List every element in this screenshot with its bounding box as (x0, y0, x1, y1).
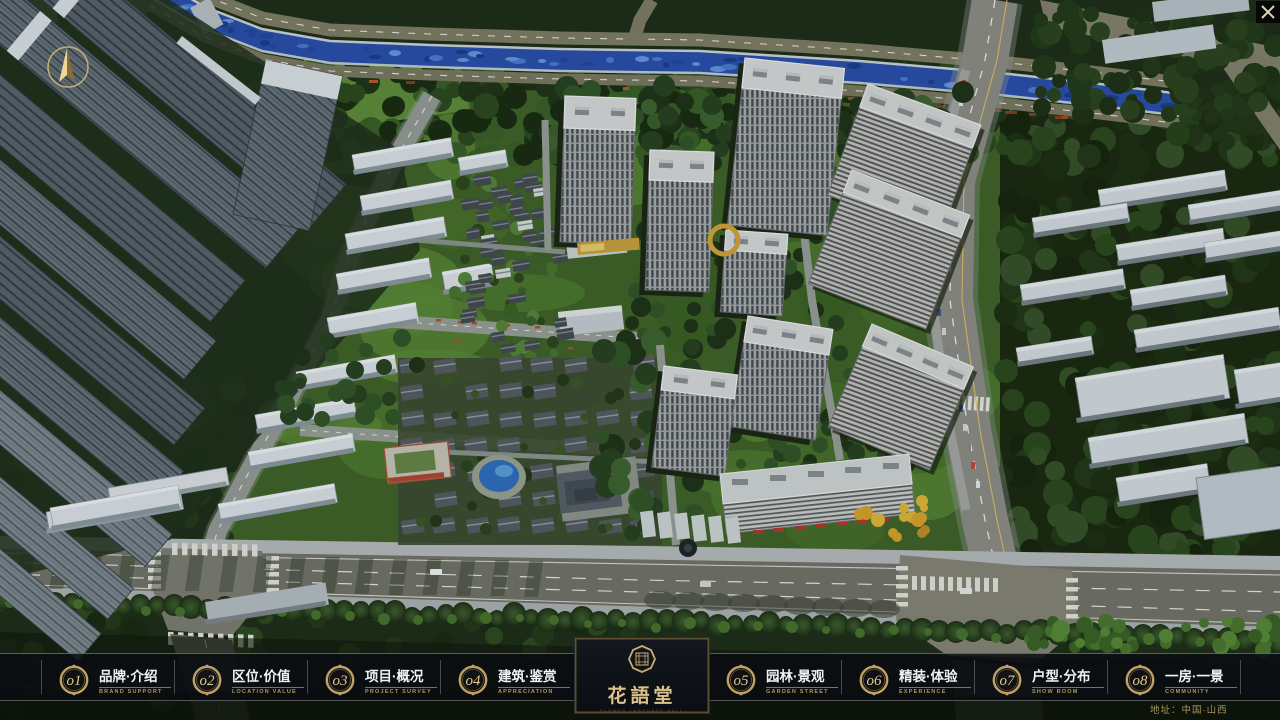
svg-text:o1: o1 (67, 673, 82, 689)
svg-text:o2: o2 (200, 673, 216, 689)
svg-text:o6: o6 (867, 673, 883, 689)
svg-text:o8: o8 (1133, 673, 1149, 689)
svg-text:o5: o5 (734, 673, 750, 689)
svg-text:o3: o3 (333, 673, 348, 689)
svg-text:o7: o7 (1000, 673, 1017, 689)
svg-text:o4: o4 (466, 673, 482, 689)
